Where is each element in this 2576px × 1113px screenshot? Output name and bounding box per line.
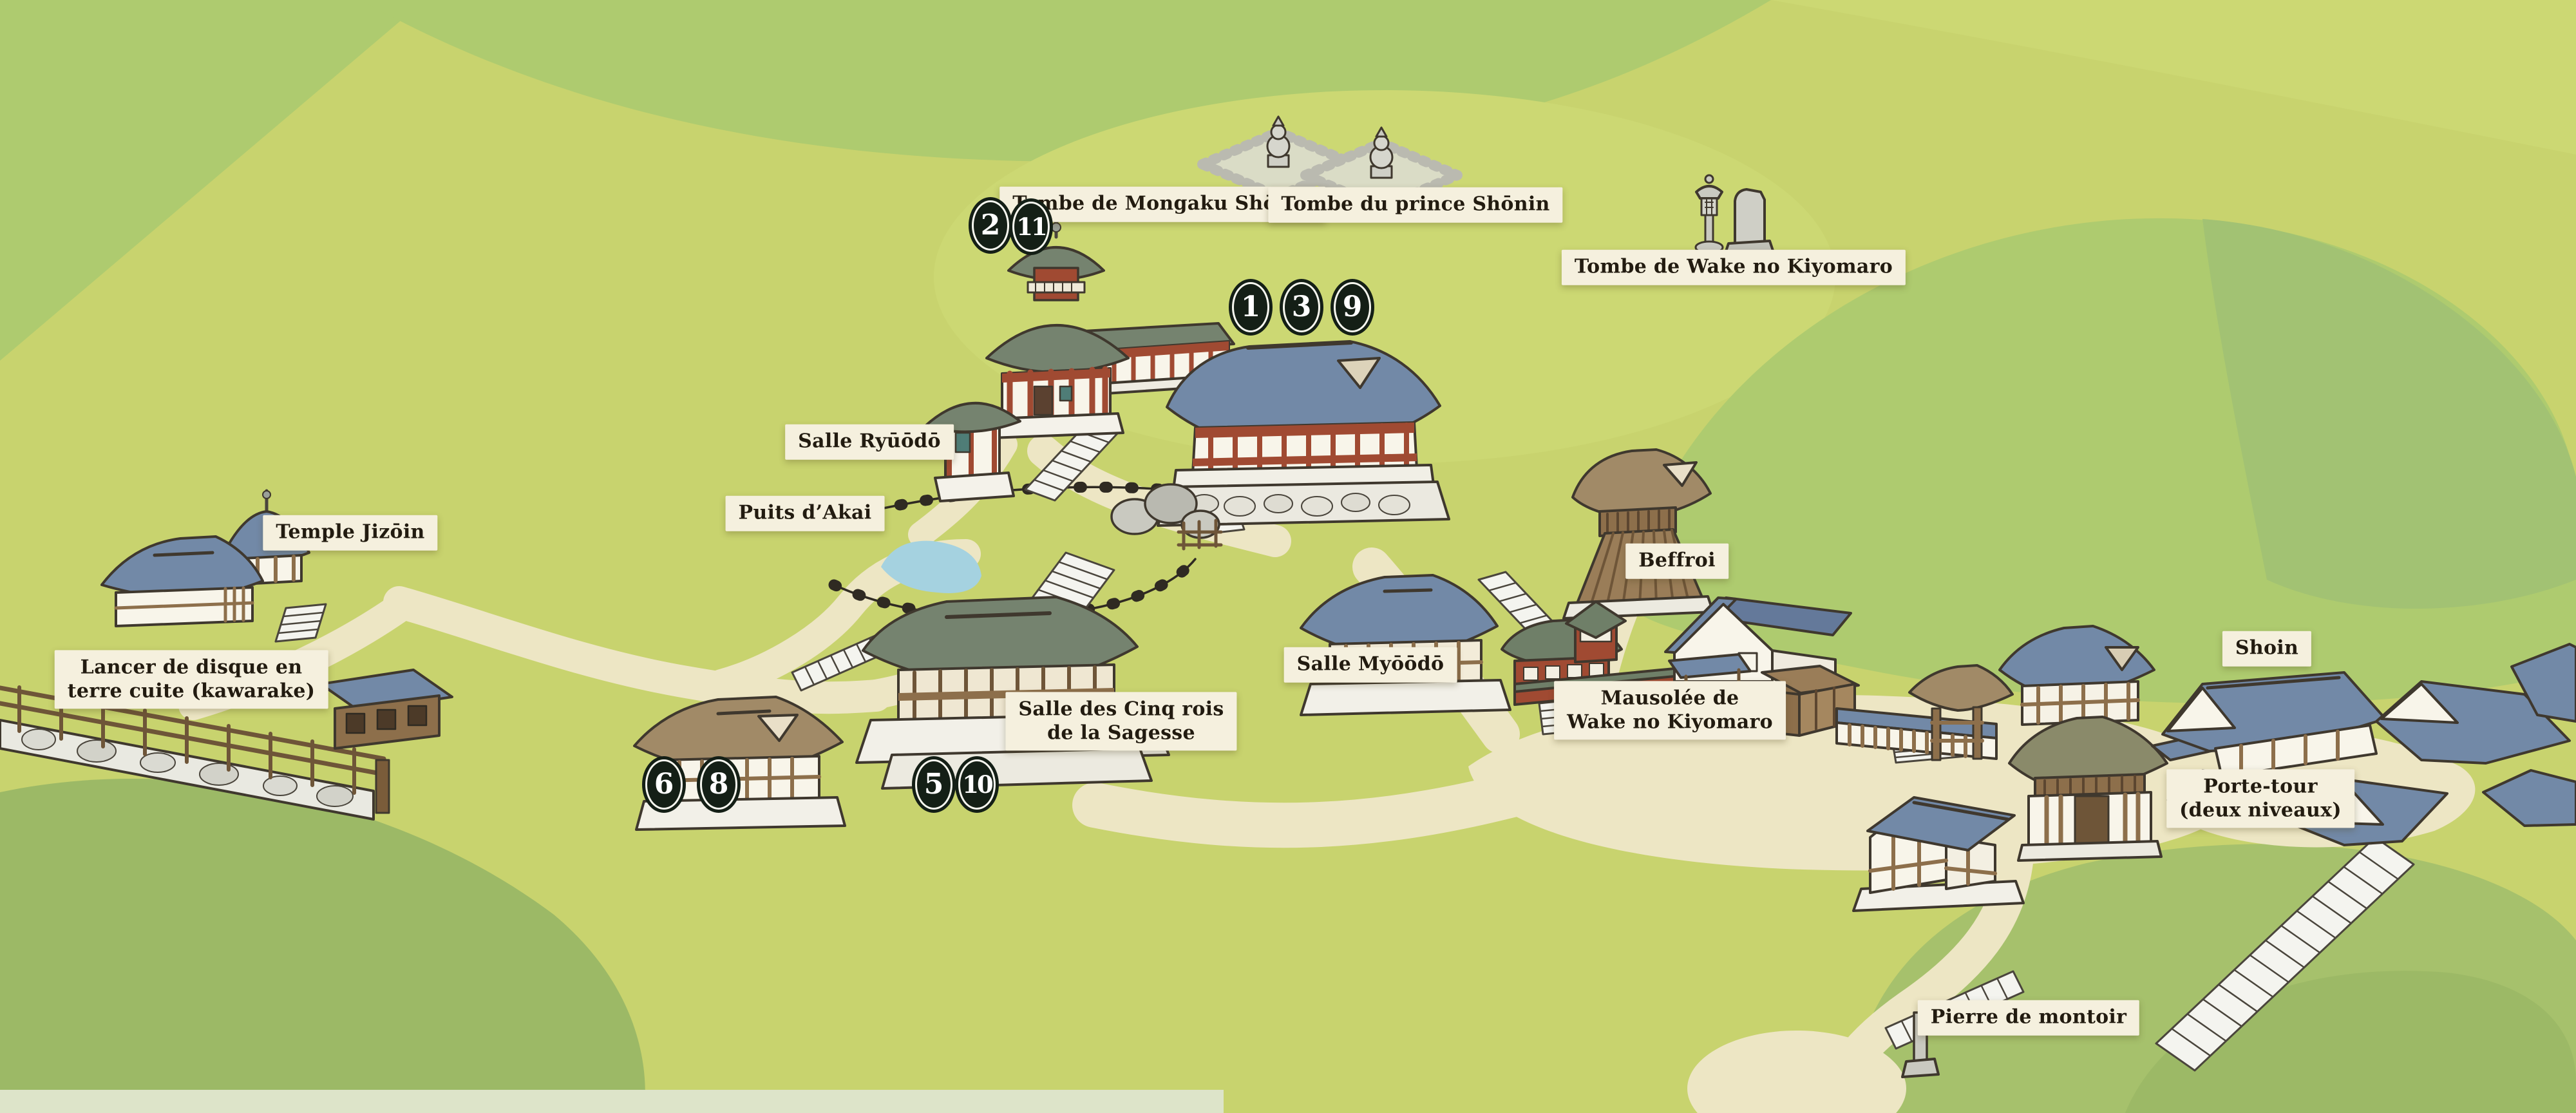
- map-marker-number: 5: [924, 770, 944, 799]
- map-label-puits-akai: Puits d’Akai: [726, 496, 885, 531]
- map-label-tombe-wake: Tombe de Wake no Kiyomaro: [1562, 250, 1906, 285]
- map-marker-number: 10: [962, 773, 992, 797]
- temple-map: Tombe de Mongaku ShōninTombe du prince S…: [0, 0, 2576, 1113]
- annotation-layer: Tombe de Mongaku ShōninTombe du prince S…: [0, 0, 2576, 1113]
- map-label-beffroi: Beffroi: [1625, 544, 1728, 579]
- map-label-mausolee: Mausolée de Wake no Kiyomaro: [1554, 681, 1786, 739]
- map-marker-2[interactable]: 2: [972, 200, 1009, 251]
- map-marker-number: 8: [709, 770, 729, 799]
- map-label-salle-ryuodo: Salle Ryūōdō: [785, 424, 954, 460]
- map-marker-1[interactable]: 1: [1232, 282, 1269, 332]
- map-marker-9[interactable]: 9: [1334, 282, 1371, 332]
- map-marker-number: 3: [1292, 293, 1312, 321]
- map-label-salle-myoodo: Salle Myōōdō: [1284, 647, 1457, 683]
- map-marker-number: 2: [981, 211, 1001, 240]
- map-label-pierre-montoir: Pierre de montoir: [1918, 1000, 2139, 1036]
- map-marker-number: 11: [1016, 215, 1046, 239]
- map-marker-6[interactable]: 6: [645, 759, 683, 810]
- map-label-kawarake: Lancer de disque en terre cuite (kawarak…: [55, 650, 328, 709]
- map-marker-5[interactable]: 5: [915, 759, 952, 810]
- map-marker-3[interactable]: 3: [1283, 282, 1320, 332]
- map-label-tombe-prince: Tombe du prince Shōnin: [1268, 187, 1562, 223]
- map-label-shoin: Shoin: [2222, 631, 2311, 667]
- map-marker-number: 1: [1241, 293, 1261, 321]
- map-marker-8[interactable]: 8: [700, 759, 737, 810]
- map-marker-number: 6: [654, 770, 674, 799]
- map-label-cinq-rois: Salle des Cinq rois de la Sagesse: [1005, 692, 1236, 750]
- map-label-porte-tour: Porte-tour (deux niveaux): [2166, 769, 2354, 828]
- map-label-temple-jizoin: Temple Jizōin: [263, 515, 437, 551]
- map-marker-number: 9: [1343, 293, 1363, 321]
- map-marker-10[interactable]: 10: [958, 759, 996, 810]
- map-marker-11[interactable]: 11: [1012, 202, 1050, 252]
